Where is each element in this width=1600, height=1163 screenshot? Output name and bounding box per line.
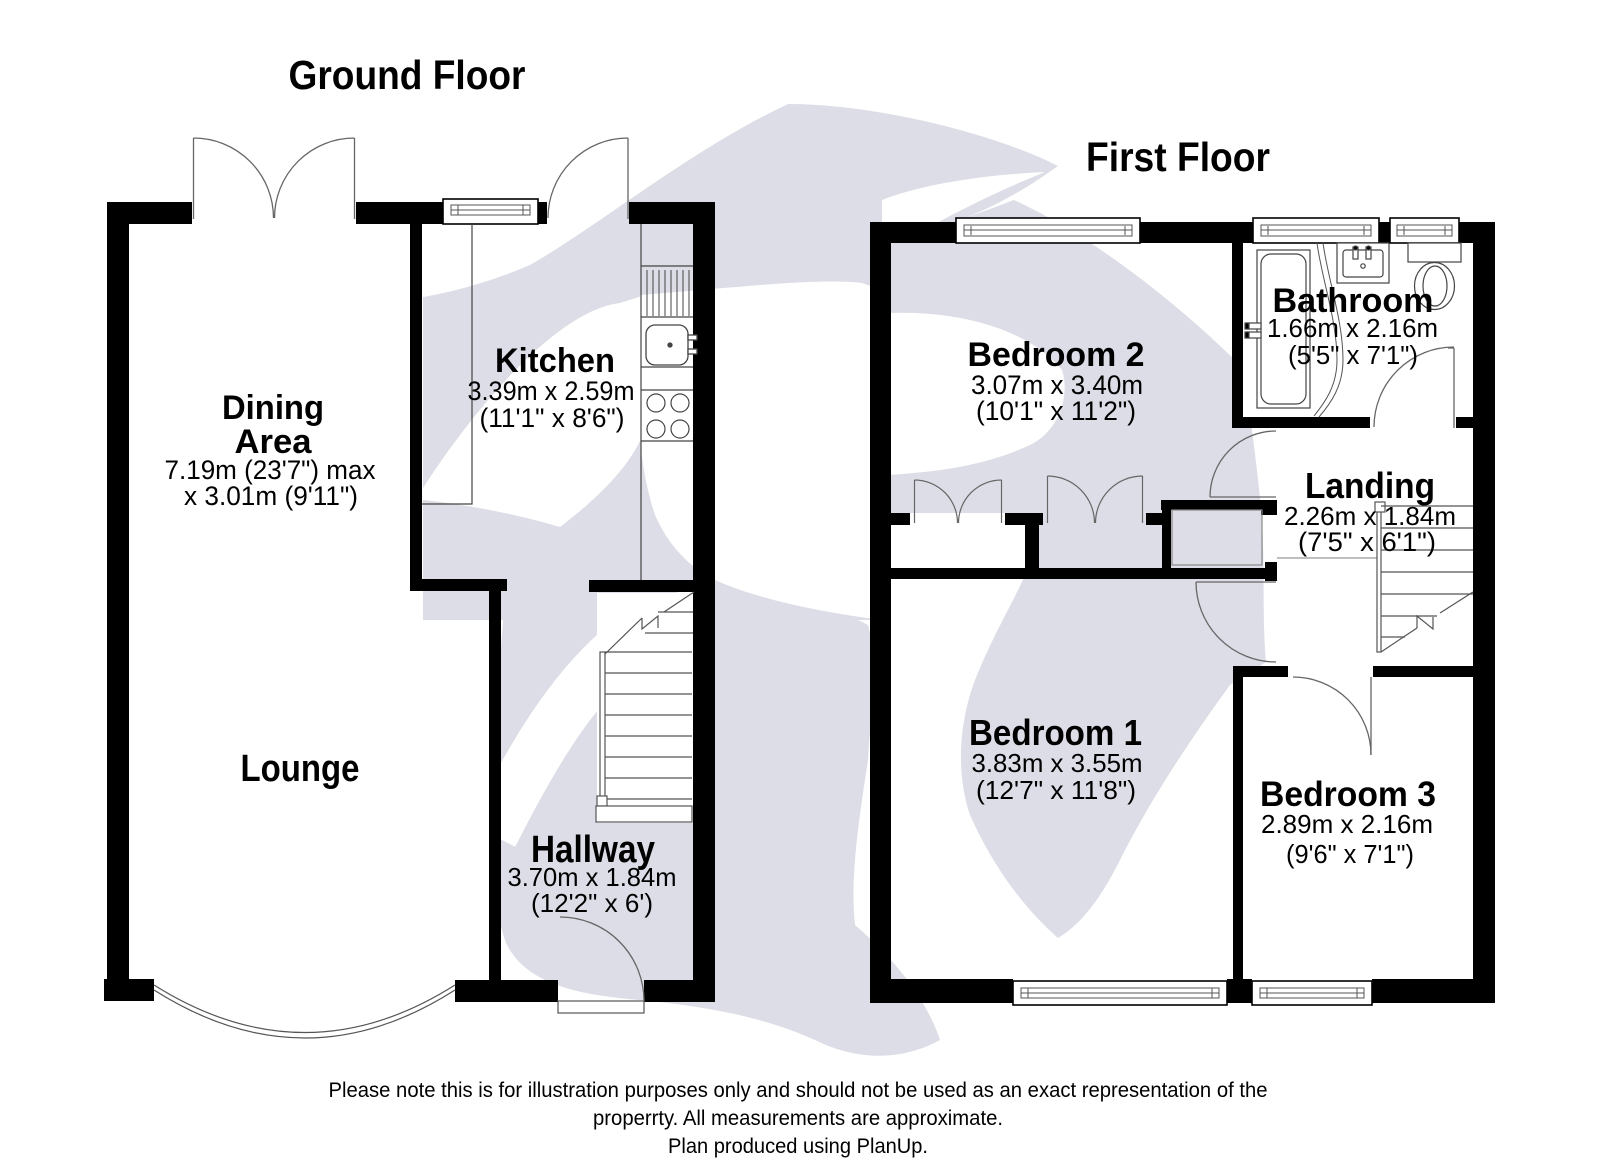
svg-text:Landing: Landing — [1305, 465, 1435, 506]
svg-text:Dining: Dining — [222, 389, 324, 427]
svg-text:Bedroom 2: Bedroom 2 — [968, 336, 1145, 374]
svg-text:2.89m x 2.16m: 2.89m x 2.16m — [1261, 809, 1433, 839]
svg-text:(9'6" x 7'1"): (9'6" x 7'1") — [1286, 841, 1414, 869]
svg-text:(7'5" x 6'1"): (7'5" x 6'1") — [1298, 527, 1436, 557]
svg-text:properrty. All measurements ar: properrty. All measurements are approxim… — [593, 1107, 1003, 1130]
svg-text:1.66m x 2.16m: 1.66m x 2.16m — [1267, 315, 1438, 343]
svg-text:First Floor: First Floor — [1086, 134, 1270, 180]
svg-text:3.39m x 2.59m: 3.39m x 2.59m — [468, 376, 635, 406]
svg-text:(12'7" x 11'8"): (12'7" x 11'8") — [976, 775, 1136, 805]
svg-text:Lounge: Lounge — [241, 748, 360, 790]
svg-text:Ground Floor: Ground Floor — [289, 52, 526, 98]
svg-text:(10'1" x 11'2"): (10'1" x 11'2") — [976, 396, 1136, 426]
svg-text:(5'5" x 7'1"): (5'5" x 7'1") — [1288, 342, 1418, 370]
svg-text:Kitchen: Kitchen — [495, 342, 615, 380]
svg-text:x 3.01m (9'11"): x 3.01m (9'11") — [184, 481, 358, 511]
svg-text:(12'2" x 6'): (12'2" x 6') — [531, 888, 653, 918]
svg-text:3.83m x 3.55m: 3.83m x 3.55m — [972, 748, 1143, 778]
svg-text:Please note this is for illust: Please note this is for illustration pur… — [329, 1079, 1268, 1102]
svg-text:Bedroom 1: Bedroom 1 — [969, 712, 1142, 753]
svg-text:Plan produced using PlanUp.: Plan produced using PlanUp. — [668, 1135, 928, 1158]
svg-text:(11'1" x 8'6"): (11'1" x 8'6") — [480, 403, 625, 433]
